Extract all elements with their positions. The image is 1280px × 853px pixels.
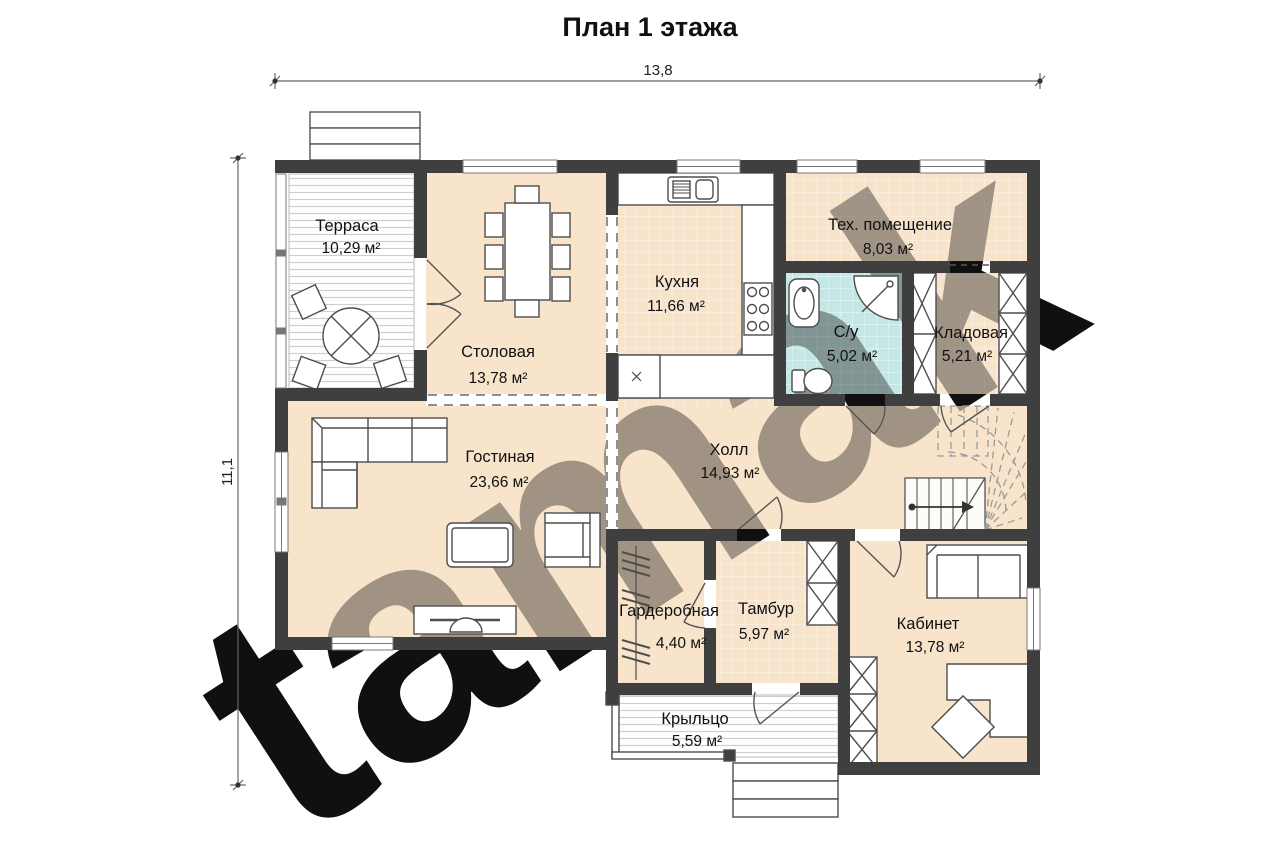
- terrace-railing: [276, 174, 286, 388]
- room-label-tech: Тех. помещение: [828, 216, 952, 234]
- toilet-icon: [792, 369, 832, 394]
- room-area-storage: 5,21 м²: [942, 348, 992, 365]
- window: [797, 160, 857, 173]
- office-sofa-icon: [927, 545, 1030, 598]
- window: [463, 160, 557, 173]
- porch-steps: [733, 763, 838, 817]
- window: [677, 160, 740, 173]
- room-label-hall: Холл: [710, 441, 749, 459]
- room-area-dining: 13,78 м²: [469, 370, 528, 387]
- room-label-dining: Столовая: [461, 343, 535, 361]
- room-area-bathroom: 5,02 м²: [827, 348, 877, 365]
- bathroom-sink-icon: [789, 279, 819, 327]
- room-label-kitchen: Кухня: [655, 273, 699, 291]
- dimension-height-label: 11,1: [219, 458, 236, 486]
- room-area-porch: 5,59 м²: [672, 733, 722, 750]
- window: [1027, 588, 1040, 650]
- room-area-terrace: 10,29 м²: [322, 240, 381, 257]
- vestibule-closet-icon: [807, 541, 838, 625]
- room-label-office: Кабинет: [897, 615, 960, 633]
- room-label-bathroom: С/у: [834, 323, 860, 341]
- washing-machine-icon: [618, 355, 660, 398]
- room-label-wardrobe: Гардеробная: [619, 602, 719, 620]
- floor-plan: tamak tamak: [0, 0, 1280, 853]
- tv-stand-icon: [414, 606, 516, 634]
- room-label-vestibule: Тамбур: [738, 600, 794, 618]
- room-area-office: 13,78 м²: [906, 639, 965, 656]
- room-area-wardrobe: 4,40 м²: [656, 635, 706, 652]
- window: [920, 160, 985, 173]
- page-title: План 1 этажа: [562, 12, 738, 42]
- window: [332, 637, 393, 650]
- floor-plan-page: tamak tamak: [0, 0, 1280, 853]
- dimension-width-label: 13,8: [643, 62, 672, 79]
- office-shelving-icon: [847, 657, 877, 768]
- kitchen-sink-icon: [668, 177, 718, 202]
- room-area-kitchen: 11,66 м²: [647, 298, 705, 315]
- room-label-porch: Крыльцо: [661, 710, 728, 728]
- room-label-storage: Кладовая: [934, 324, 1008, 342]
- stove-icon: [744, 283, 772, 335]
- terrace-steps: [310, 112, 420, 160]
- coffee-table-icon: [447, 523, 513, 567]
- room-label-terrace: Терраса: [315, 217, 379, 235]
- armchair-icon: [545, 513, 600, 567]
- room-area-hall: 14,93 м²: [701, 465, 760, 482]
- room-label-living: Гостиная: [465, 448, 534, 466]
- room-area-vestibule: 5,97 м²: [739, 626, 789, 643]
- window: [275, 452, 288, 552]
- room-area-living: 23,66 м²: [470, 474, 529, 491]
- room-area-tech: 8,03 м²: [863, 241, 913, 258]
- terrace-table-icon: [323, 308, 379, 364]
